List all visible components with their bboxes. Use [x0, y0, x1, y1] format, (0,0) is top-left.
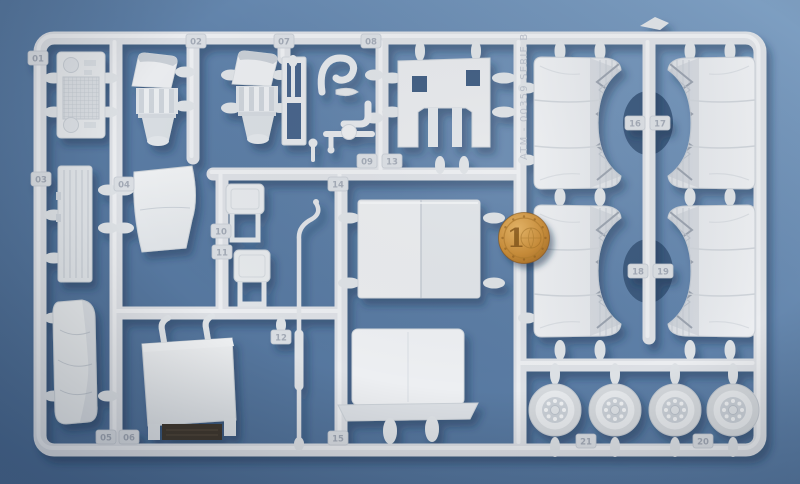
sprue-photo: ATM - 00359 SERIE B 01 02 03 04 05 06 07… — [0, 0, 800, 484]
scene: ATM - 00359 SERIE B 01 02 03 04 05 06 07… — [0, 0, 800, 484]
photo-vignette — [0, 0, 800, 484]
